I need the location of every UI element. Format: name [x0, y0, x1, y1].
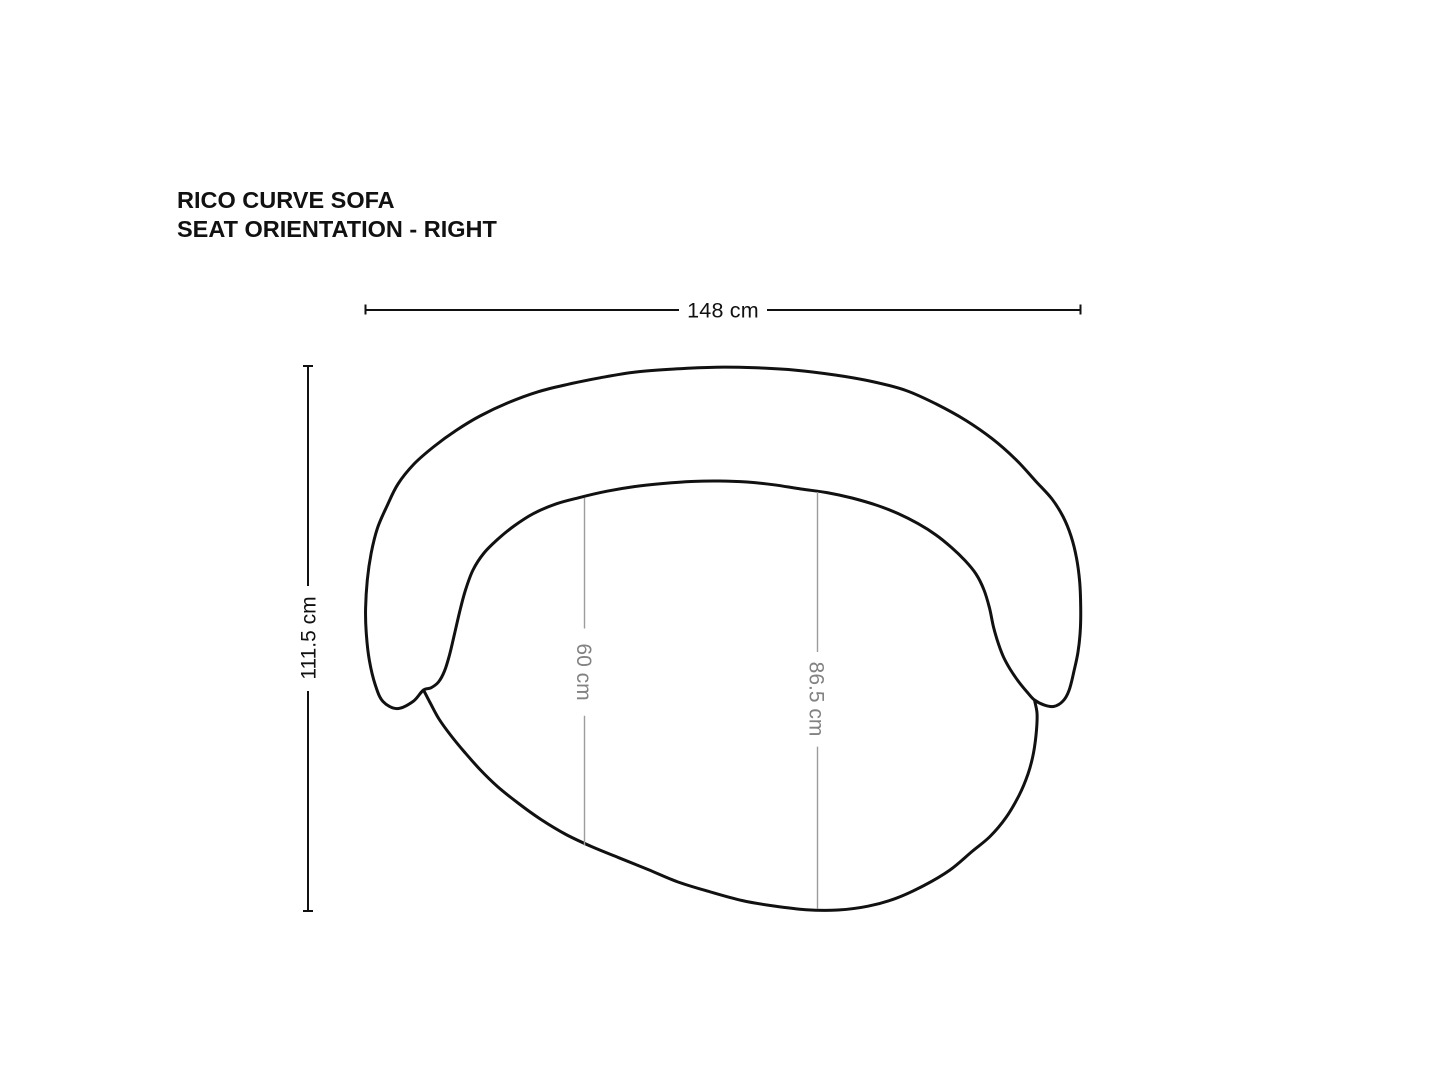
svg-text:86.5 cm: 86.5 cm — [805, 662, 828, 737]
svg-text:60 cm: 60 cm — [572, 643, 595, 700]
svg-text:111.5 cm: 111.5 cm — [298, 596, 321, 679]
svg-text:148 cm: 148 cm — [687, 299, 759, 323]
